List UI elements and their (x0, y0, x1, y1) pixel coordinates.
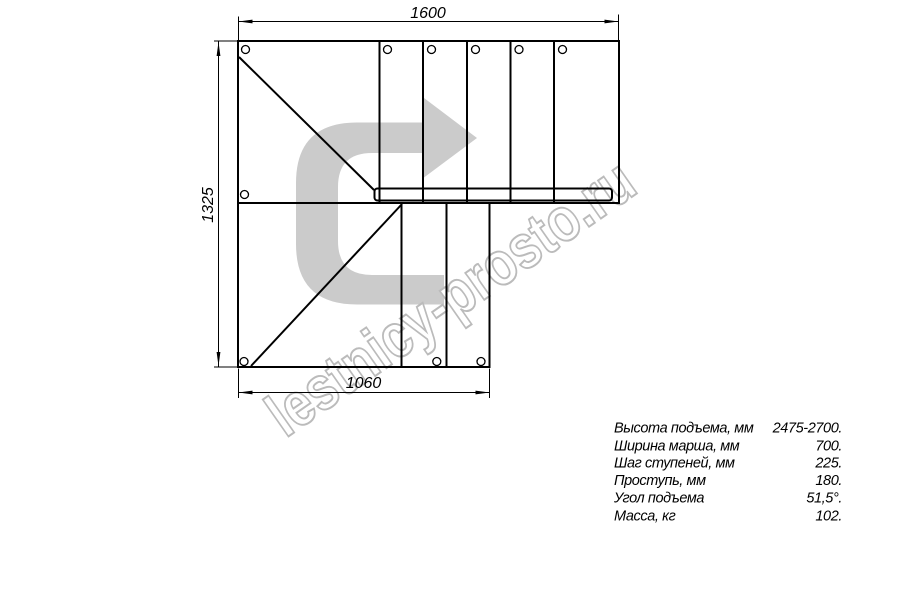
svg-text:102.: 102. (815, 508, 842, 524)
svg-text:Высота подъема, мм: Высота подъема, мм (614, 421, 754, 437)
svg-text:Угол подъема: Угол подъема (613, 490, 704, 506)
svg-text:Проступь, мм: Проступь, мм (614, 473, 706, 489)
svg-text:1060: 1060 (346, 375, 382, 392)
svg-text:2475-2700.: 2475-2700. (772, 421, 842, 437)
svg-text:51,5°.: 51,5°. (806, 490, 842, 506)
svg-text:180.: 180. (815, 473, 842, 489)
svg-text:225.: 225. (814, 456, 842, 472)
svg-text:Шаг ступеней, мм: Шаг ступеней, мм (614, 456, 735, 472)
svg-text:Ширина марша, мм: Ширина марша, мм (614, 438, 740, 454)
svg-text:Масса, кг: Масса, кг (614, 508, 676, 524)
svg-text:700.: 700. (815, 438, 842, 454)
svg-text:1600: 1600 (410, 5, 446, 22)
svg-text:1325: 1325 (200, 187, 217, 223)
